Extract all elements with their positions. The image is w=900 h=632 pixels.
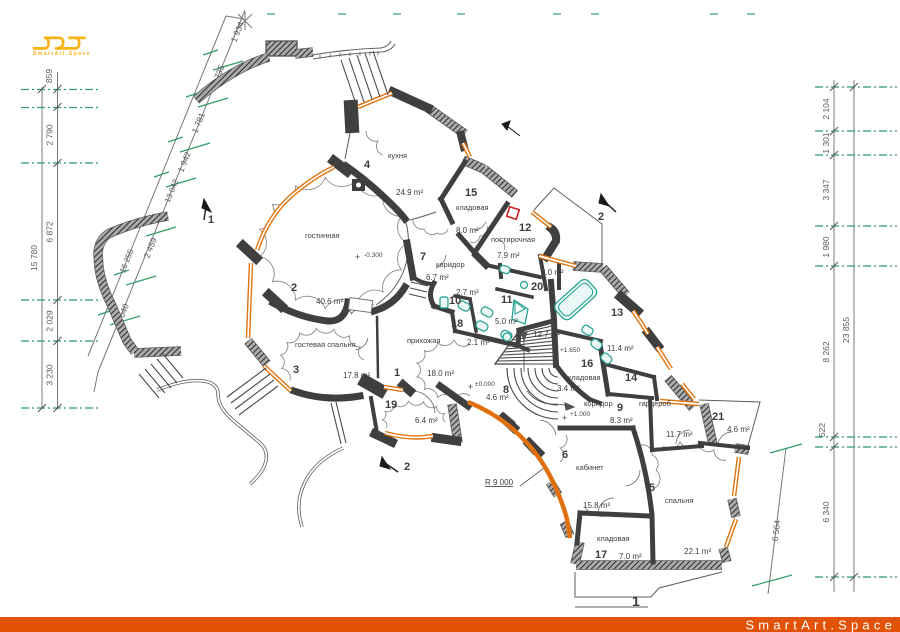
svg-text:11.7 m²: 11.7 m² (666, 430, 693, 439)
svg-text:SmartArt.Space: SmartArt.Space (33, 51, 91, 57)
svg-text:2 104: 2 104 (821, 98, 831, 120)
svg-text:прихожая: прихожая (407, 336, 440, 345)
svg-text:15 780: 15 780 (29, 245, 39, 271)
svg-text:4: 4 (364, 159, 371, 171)
svg-text:6.7 m²: 6.7 m² (426, 273, 449, 282)
svg-text:1: 1 (208, 214, 214, 226)
svg-text:2.7 m²: 2.7 m² (456, 288, 479, 297)
svg-text:гостинная: гостинная (305, 231, 340, 240)
svg-text:3: 3 (293, 364, 299, 376)
svg-text:23 855: 23 855 (841, 317, 851, 343)
svg-text:12.7 m²: 12.7 m² (533, 330, 560, 339)
svg-text:5.0 m²: 5.0 m² (495, 317, 518, 326)
svg-text:кладовая: кладовая (597, 534, 630, 543)
svg-text:24.9 m²: 24.9 m² (396, 188, 423, 197)
svg-text:±0.000: ±0.000 (475, 381, 495, 388)
svg-text:12: 12 (519, 222, 531, 234)
svg-text:19: 19 (385, 399, 397, 411)
svg-text:кухня: кухня (388, 151, 407, 160)
svg-text:кладовая: кладовая (456, 203, 489, 212)
svg-text:1 980: 1 980 (821, 236, 831, 258)
svg-text:5: 5 (649, 482, 655, 494)
svg-text:2: 2 (598, 211, 604, 223)
svg-text:7.0 m²: 7.0 m² (619, 552, 642, 561)
svg-text:20: 20 (531, 281, 543, 293)
svg-text:40.6 m²: 40.6 m² (316, 297, 343, 306)
svg-text:+1.650: +1.650 (560, 347, 580, 354)
svg-text:8.0 m²: 8.0 m² (456, 226, 479, 235)
svg-text:3 230: 3 230 (45, 364, 55, 386)
svg-text:6 340: 6 340 (821, 501, 831, 523)
svg-text:522: 522 (817, 423, 827, 437)
svg-text:11.4 m²: 11.4 m² (607, 344, 634, 353)
svg-text:+1.000: +1.000 (570, 411, 590, 418)
svg-text:спальня: спальня (665, 496, 693, 505)
svg-text:7.9 m²: 7.9 m² (497, 251, 520, 260)
svg-text:15: 15 (465, 187, 477, 199)
svg-text:18.0 m²: 18.0 m² (427, 369, 454, 378)
svg-text:6 872: 6 872 (45, 221, 55, 243)
svg-text:8 262: 8 262 (821, 341, 831, 363)
svg-text:4.6 m²: 4.6 m² (486, 393, 509, 402)
svg-text:+: + (551, 348, 556, 358)
svg-text:3.0 m²: 3.0 m² (541, 268, 564, 277)
svg-text:кабинет: кабинет (576, 463, 604, 472)
svg-text:1: 1 (632, 593, 640, 609)
svg-text:6.4 m²: 6.4 m² (415, 416, 438, 425)
svg-text:3 347: 3 347 (821, 179, 831, 201)
svg-text:-0.300: -0.300 (364, 252, 383, 259)
svg-text:859: 859 (44, 69, 54, 83)
svg-text:гостевая спальня: гостевая спальня (295, 340, 356, 349)
svg-text:постирочная: постирочная (491, 235, 535, 244)
svg-text:кладовая: кладовая (568, 373, 601, 382)
svg-text:2.1 m²: 2.1 m² (467, 338, 490, 347)
svg-text:14: 14 (625, 372, 638, 384)
svg-text:11: 11 (501, 294, 513, 306)
svg-text:1: 1 (394, 367, 400, 379)
svg-text:7: 7 (420, 251, 426, 263)
svg-text:коридор: коридор (436, 260, 465, 269)
svg-text:18: 18 (451, 318, 463, 330)
svg-text:9: 9 (617, 402, 623, 414)
svg-text:21: 21 (712, 411, 724, 423)
svg-text:22.1 m²: 22.1 m² (684, 547, 711, 556)
svg-text:+: + (562, 413, 567, 423)
svg-text:2: 2 (291, 282, 297, 294)
svg-text:17: 17 (595, 549, 607, 561)
svg-text:гардероб: гардероб (639, 399, 671, 408)
svg-text:6: 6 (562, 449, 568, 461)
svg-text:+: + (355, 252, 360, 262)
svg-text:15.8 m²: 15.8 m² (583, 501, 610, 510)
svg-text:16: 16 (581, 358, 593, 370)
svg-text:4.6 m²: 4.6 m² (727, 425, 750, 434)
svg-text:SmartArt.Space: SmartArt.Space (745, 618, 896, 632)
svg-text:2 790: 2 790 (45, 124, 55, 146)
svg-text:2 029: 2 029 (45, 310, 55, 332)
svg-text:+: + (468, 382, 473, 392)
svg-text:коридор: коридор (584, 399, 613, 408)
svg-text:1 301: 1 301 (821, 132, 831, 154)
svg-text:2: 2 (404, 461, 410, 473)
svg-text:17.8 m²: 17.8 m² (343, 371, 370, 380)
svg-text:13: 13 (611, 307, 623, 319)
svg-text:8.3 m²: 8.3 m² (610, 416, 633, 425)
svg-text:R 9 000: R 9 000 (485, 478, 514, 487)
svg-text:3.4 m²: 3.4 m² (557, 384, 580, 393)
